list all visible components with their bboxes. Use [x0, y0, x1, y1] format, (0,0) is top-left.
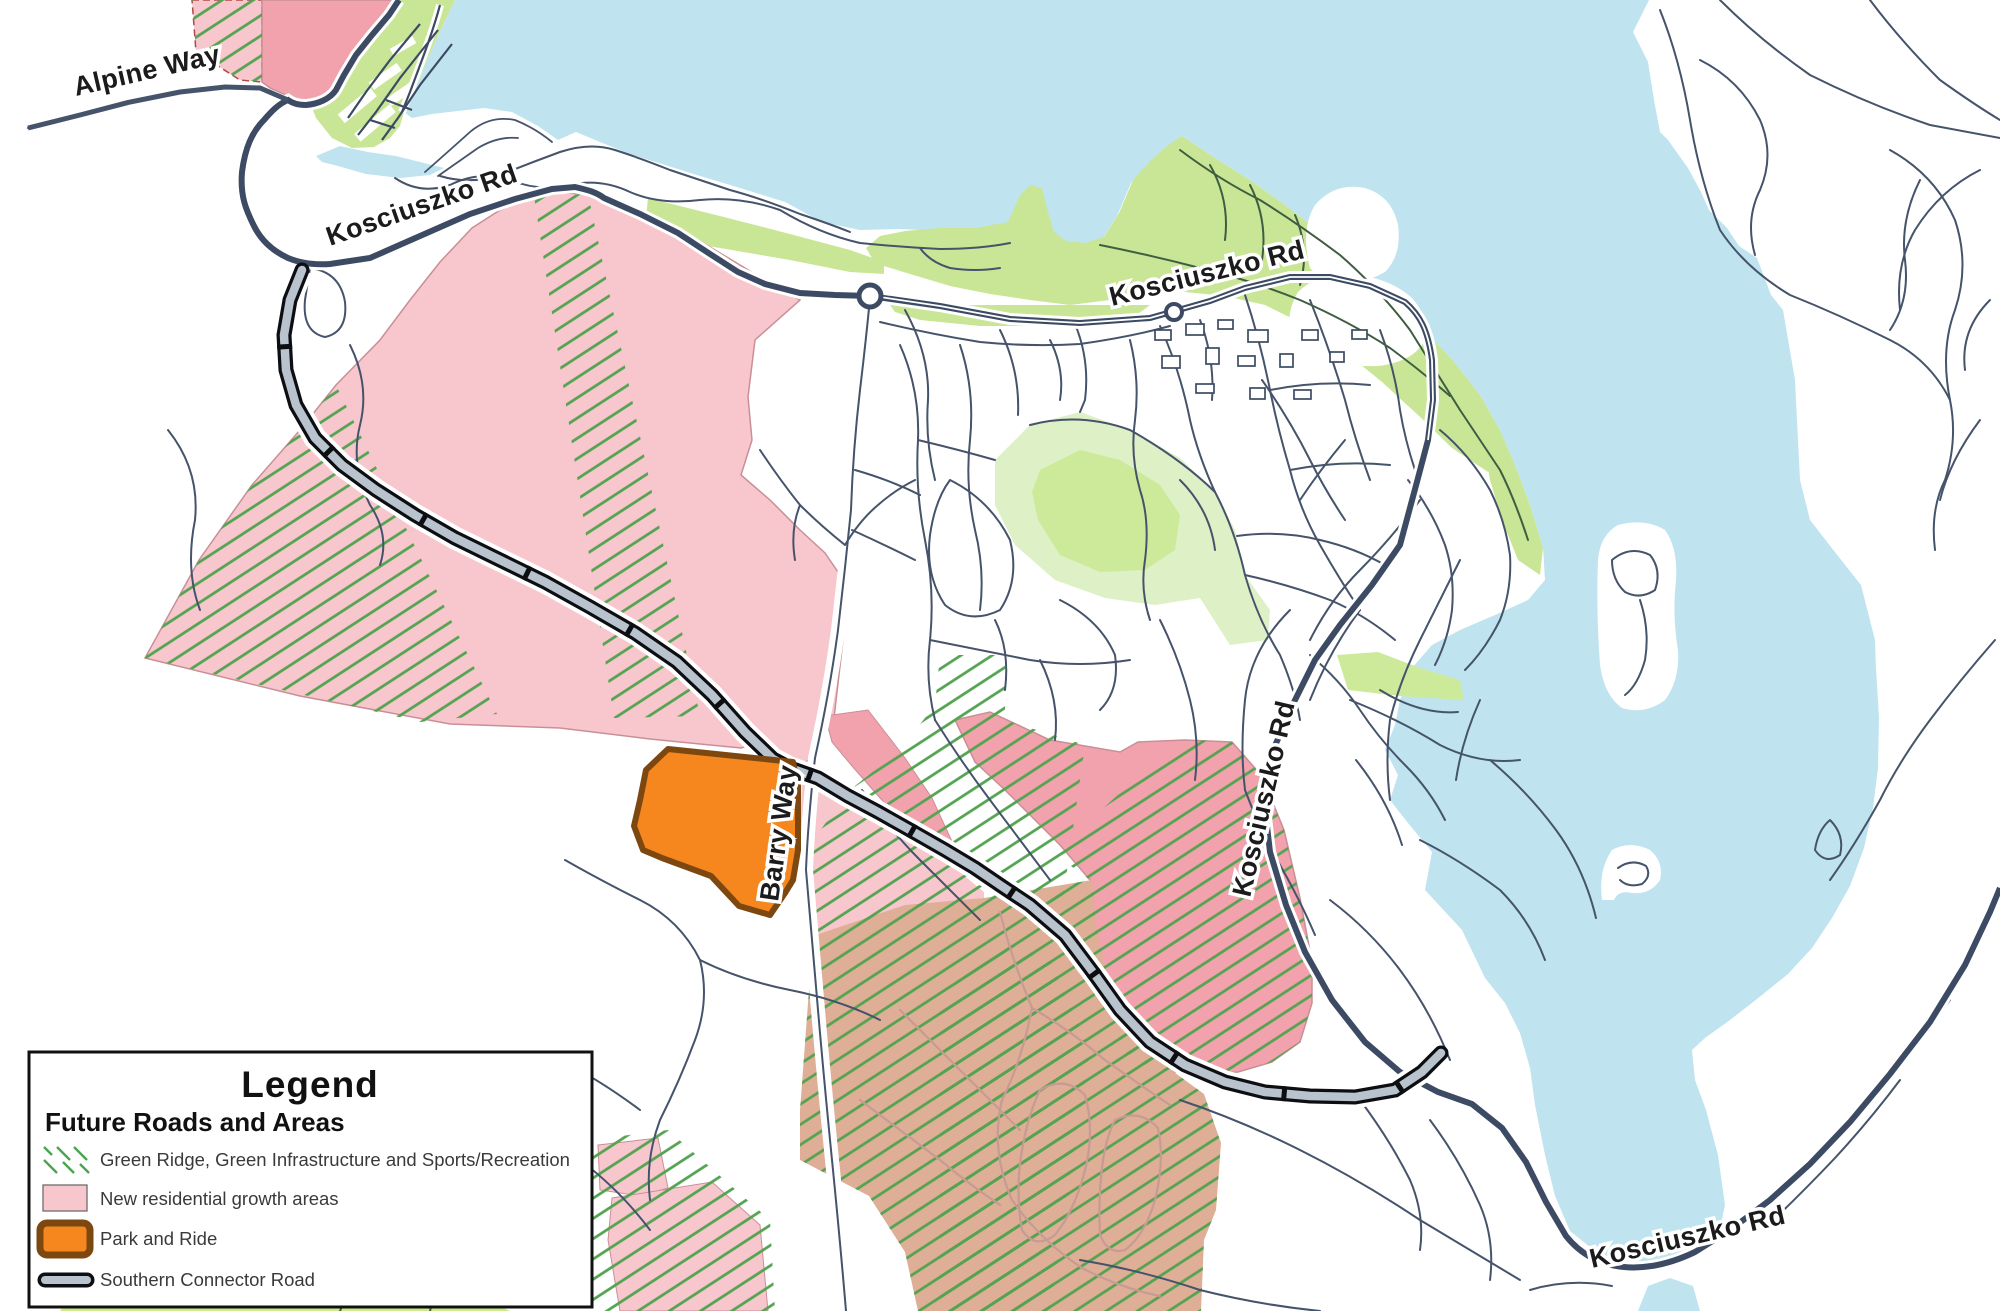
svg-text:Southern Connector Road: Southern Connector Road: [100, 1269, 315, 1290]
svg-text:Park and Ride: Park and Ride: [100, 1228, 217, 1249]
svg-text:New residential growth areas: New residential growth areas: [100, 1188, 339, 1209]
svg-text:Legend: Legend: [241, 1064, 379, 1105]
svg-text:Green Ridge, Green Infrastruct: Green Ridge, Green Infrastructure and Sp…: [100, 1149, 570, 1170]
svg-text:Future Roads and Areas: Future Roads and Areas: [45, 1107, 345, 1137]
